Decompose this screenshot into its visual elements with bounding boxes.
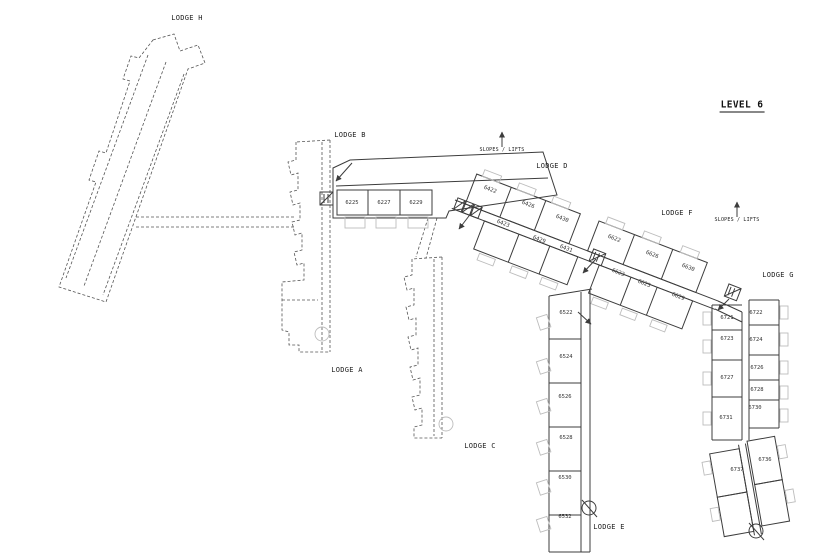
room-label: 6229 [409, 200, 422, 206]
room-label: 6721 [720, 315, 733, 321]
room-label: 6731 [719, 415, 732, 421]
level-title: LEVEL 6 [720, 100, 765, 113]
room-label: 6524 [559, 354, 572, 360]
slopes-lifts-label: SLOPES / LIFTS [715, 217, 760, 223]
lodge-g-lower-wing [700, 435, 800, 542]
lodge-e-label: LODGE E [593, 523, 625, 531]
room-label: 6530 [558, 475, 571, 481]
slopes-lifts-label: SLOPES / LIFTS [480, 147, 525, 153]
room-label: 6736 [758, 457, 771, 463]
lodge-b-label: LODGE B [334, 131, 366, 139]
room-label: 6532 [558, 514, 571, 520]
room-label: 6723 [720, 336, 733, 342]
room-label: 6730 [748, 405, 761, 411]
lodge-h-label: LODGE H [171, 14, 203, 22]
lodge-h-outline [59, 34, 205, 302]
room-label: 6526 [558, 394, 571, 400]
room-label: 6722 [749, 310, 762, 316]
room-label: 6728 [750, 387, 763, 393]
lodge-g-label: LODGE G [762, 271, 794, 279]
lodge-e-building [536, 289, 597, 552]
lodge-a-label: LODGE A [331, 366, 363, 374]
lodge-g-building [700, 284, 800, 542]
lodge-c-outline [404, 218, 453, 438]
floor-plan: LEVEL 6 LODGE H LODGE B LODGE A LODGE C … [0, 0, 831, 555]
room-label: 6522 [559, 310, 572, 316]
corridor-h-a [136, 217, 296, 227]
plan-linework [0, 0, 831, 555]
lodge-a-outline [282, 140, 330, 352]
lodge-c-label: LODGE C [464, 442, 496, 450]
lodge-b-building [320, 152, 557, 228]
lift-icon [724, 284, 741, 301]
entrance-arrow-icon [459, 212, 472, 229]
room-label: 6225 [345, 200, 358, 206]
lodge-d-label: LODGE D [536, 162, 568, 170]
room-label: 6726 [750, 365, 763, 371]
room-label: 6724 [749, 337, 762, 343]
entrance-arrow-icon [578, 312, 591, 324]
room-label: 6737 [730, 467, 743, 473]
room-label: 6727 [720, 375, 733, 381]
room-label: 6227 [377, 200, 390, 206]
room-label: 6528 [559, 435, 572, 441]
lodge-f-label: LODGE F [661, 209, 693, 217]
